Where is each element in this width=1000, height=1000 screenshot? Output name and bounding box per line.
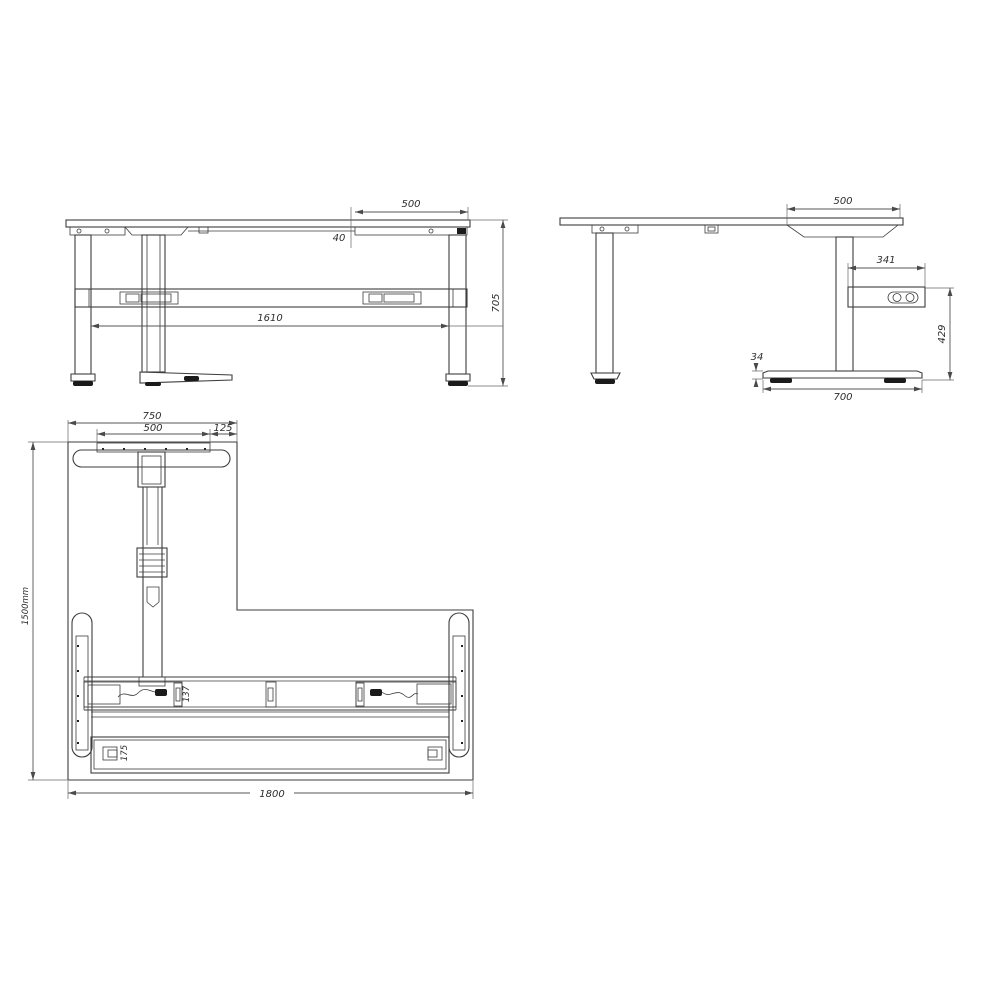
- drawing-canvas: 500 40 1610 705: [0, 0, 1000, 1000]
- power-plug-icon: [155, 689, 167, 696]
- plan-top-mount: [73, 443, 230, 467]
- side-dim-341-label: 341: [876, 255, 895, 266]
- power-plug-icon: [370, 689, 382, 696]
- plan-cable-tray-right: [356, 682, 456, 707]
- front-dim-1610: 1610: [91, 313, 503, 326]
- side-dim-700-label: 700: [833, 392, 852, 403]
- plan-dim-500-label: 500: [143, 423, 162, 434]
- plan-dim-1500: 1500mm: [21, 442, 68, 780]
- front-crossbar: [75, 289, 467, 307]
- desk-dimensional-drawing: 500 40 1610 705: [0, 0, 1000, 1000]
- plan-dim-175: 175: [120, 745, 130, 761]
- side-dim-34-label: 34: [751, 352, 764, 363]
- plan-column: [137, 452, 167, 686]
- front-dim-500: 500: [351, 199, 468, 248]
- plan-dim-125: 125: [210, 423, 237, 434]
- front-right-leg: [446, 235, 470, 386]
- front-dim-705: 705: [468, 220, 508, 386]
- side-dim-500-label: 500: [833, 196, 852, 207]
- side-dim-429-label: 429: [937, 324, 948, 343]
- plan-hook-left: [103, 747, 117, 760]
- plan-dim-750-label: 750: [142, 411, 161, 422]
- plan-desktop-outline: [68, 442, 473, 780]
- front-dim-40: 40: [333, 233, 346, 244]
- plan-dim-1500-label: 1500mm: [21, 587, 31, 625]
- side-foot: [763, 371, 922, 383]
- updown-buttons-icon: [888, 292, 918, 303]
- side-dim-500: 500: [787, 196, 900, 225]
- plan-view: 750 500 125 1500mm 1800 137: [21, 411, 473, 800]
- side-dim-700: 700: [763, 380, 922, 403]
- plan-beam-connector: [266, 682, 276, 707]
- side-front-leg: [836, 237, 853, 371]
- side-rear-leg: [591, 233, 620, 384]
- plan-dim-175-label: 175: [120, 745, 130, 761]
- side-top-support: [787, 225, 898, 237]
- plan-hook-right: [428, 747, 442, 760]
- side-dim-341: 341: [848, 255, 925, 287]
- front-dim-500-label: 500: [401, 199, 420, 210]
- front-left-leg: [71, 235, 95, 386]
- side-view: 500 341 429 34 700: [560, 196, 954, 403]
- front-dim-40-label: 40: [333, 233, 346, 244]
- plan-dim-1800: 1800: [68, 781, 473, 800]
- front-tabletop: [66, 220, 470, 227]
- side-tabletop: [560, 218, 903, 225]
- front-dim-1610-label: 1610: [257, 313, 282, 324]
- plan-dim-137: 137: [182, 685, 192, 702]
- front-center-column: [140, 235, 232, 386]
- side-dim-429: 429: [922, 288, 954, 380]
- front-under-rails: [70, 227, 467, 235]
- plan-dim-1800-label: 1800: [259, 789, 284, 800]
- front-view: 500 40 1610 705: [66, 199, 508, 386]
- side-under-rails: [592, 225, 898, 237]
- plan-cable-tray-left: [84, 682, 182, 707]
- side-dim-34: 34: [751, 352, 764, 387]
- plan-main-beam: [84, 677, 456, 710]
- plan-rear-panel: [91, 712, 449, 773]
- side-control-box: [848, 287, 925, 307]
- plan-side-rail-right: [449, 613, 469, 757]
- plan-dim-137-label: 137: [182, 685, 192, 702]
- front-dim-705-label: 705: [491, 293, 502, 312]
- plan-dim-500: 500: [97, 423, 210, 443]
- plan-dim-125-label: 125: [213, 423, 232, 434]
